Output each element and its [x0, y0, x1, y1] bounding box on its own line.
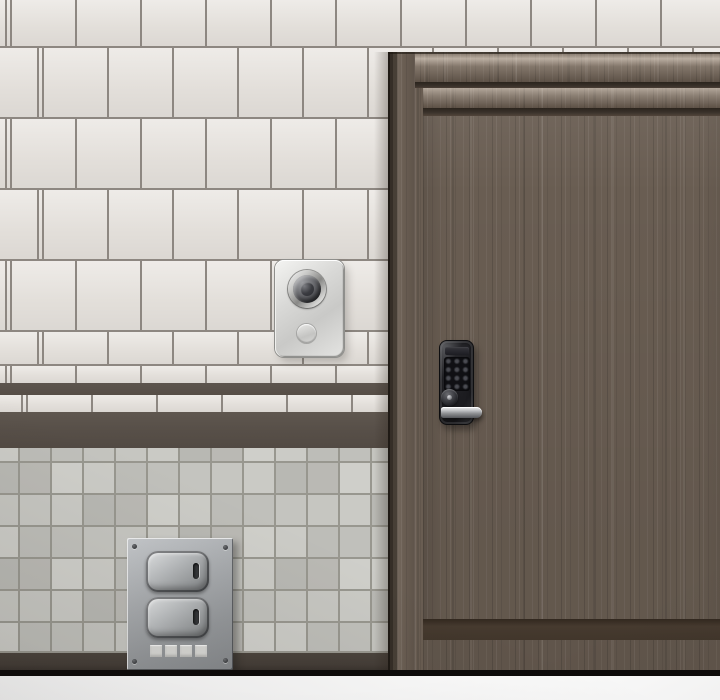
doorbell-plate[interactable] [275, 260, 344, 357]
door-edge [388, 52, 397, 670]
label-window [150, 645, 162, 657]
door-shadow [374, 52, 388, 670]
mosaic-tile [20, 591, 50, 621]
label-window [195, 645, 207, 657]
mosaic-tile [276, 448, 306, 461]
mosaic-tile [308, 463, 338, 493]
doorbell-button-ring [293, 275, 321, 303]
screw-icon [223, 545, 228, 550]
rocker-switch-bottom[interactable] [146, 597, 209, 638]
door-bottom-groove [423, 619, 720, 640]
wooden-door[interactable] [388, 52, 720, 670]
mosaic-tile [244, 623, 274, 651]
mosaic-tile [148, 448, 178, 461]
rocker-switch-top[interactable] [146, 551, 209, 592]
mosaic-tile [20, 623, 50, 651]
mosaic-tile [308, 448, 338, 461]
mosaic-tile [212, 448, 242, 461]
mosaic-tile [116, 495, 146, 525]
mosaic-tile [276, 527, 306, 557]
mosaic-tile [0, 495, 18, 525]
mosaic-tile [340, 495, 370, 525]
mosaic-tile [276, 591, 306, 621]
mosaic-tile [308, 623, 338, 651]
doorbell-button[interactable] [288, 270, 326, 308]
mosaic-tile [244, 495, 274, 525]
mosaic-tile [84, 448, 114, 461]
wall-tile-row [0, 0, 720, 48]
mosaic-tile [52, 559, 82, 589]
mosaic-tile [52, 463, 82, 493]
mosaic-tile [340, 463, 370, 493]
mosaic-tile [276, 623, 306, 651]
door-bottom-rail [423, 640, 720, 670]
mosaic-tile [180, 448, 210, 461]
mosaic-tile [340, 527, 370, 557]
mosaic-tile [84, 623, 114, 651]
label-windows [150, 645, 207, 657]
mosaic-tile [0, 448, 18, 461]
mosaic-tile [308, 591, 338, 621]
mosaic-tile [52, 623, 82, 651]
mosaic-tile [244, 448, 274, 461]
mosaic-tile [244, 463, 274, 493]
mosaic-tile [20, 448, 50, 461]
screw-icon [132, 659, 137, 664]
mosaic-tile [20, 527, 50, 557]
mosaic-tile [180, 463, 210, 493]
mosaic-tile [52, 527, 82, 557]
lock-keypad[interactable] [444, 357, 470, 391]
door-handle[interactable] [441, 407, 482, 418]
mosaic-tile [276, 559, 306, 589]
mosaic-tile [276, 463, 306, 493]
mosaic-tile [308, 495, 338, 525]
lock-cylinder[interactable] [441, 389, 458, 406]
mosaic-tile [52, 591, 82, 621]
mosaic-tile [340, 623, 370, 651]
escape-room-scene [0, 0, 720, 700]
bottom-margin [0, 676, 720, 700]
mosaic-tile [340, 559, 370, 589]
mosaic-tile [20, 495, 50, 525]
mosaic-tile [84, 495, 114, 525]
label-window [180, 645, 192, 657]
rocker-slot-icon [193, 563, 199, 579]
door-top-rail [397, 52, 720, 82]
mosaic-tile [212, 463, 242, 493]
mosaic-tile [116, 448, 146, 461]
mosaic-tile [0, 463, 18, 493]
mosaic-tile [0, 527, 18, 557]
mosaic-tile [20, 463, 50, 493]
mosaic-tile [180, 495, 210, 525]
mosaic-tile [148, 495, 178, 525]
rocker-slot-icon [193, 609, 199, 625]
mosaic-tile [0, 591, 18, 621]
mosaic-tile [52, 448, 82, 461]
mosaic-tile [244, 527, 274, 557]
mosaic-tile [84, 591, 114, 621]
mosaic-tile [20, 559, 50, 589]
door-panel-bevel [423, 88, 720, 108]
mosaic-tile [340, 448, 370, 461]
mosaic-tile [0, 623, 18, 651]
mosaic-tile [244, 591, 274, 621]
mosaic-tile [308, 527, 338, 557]
door-left-stile [397, 52, 415, 670]
lock-display [445, 347, 469, 355]
mosaic-tile [0, 559, 18, 589]
door-panel-groove [423, 108, 720, 116]
doorbell-button-core [300, 282, 314, 296]
mosaic-tile [84, 559, 114, 589]
mosaic-tile [276, 495, 306, 525]
mosaic-tile [308, 559, 338, 589]
screw-icon [223, 658, 228, 663]
switch-panel[interactable] [127, 538, 233, 670]
mosaic-tile [340, 591, 370, 621]
mosaic-tile [244, 559, 274, 589]
door-stile-groove [415, 82, 423, 670]
mosaic-tile [84, 463, 114, 493]
mosaic-tile [116, 463, 146, 493]
mosaic-tile [148, 463, 178, 493]
mosaic-tile [52, 495, 82, 525]
mosaic-tile [84, 527, 114, 557]
doorbell-small-button[interactable] [297, 324, 316, 343]
label-window [165, 645, 177, 657]
screw-icon [132, 544, 137, 549]
mosaic-tile [212, 495, 242, 525]
